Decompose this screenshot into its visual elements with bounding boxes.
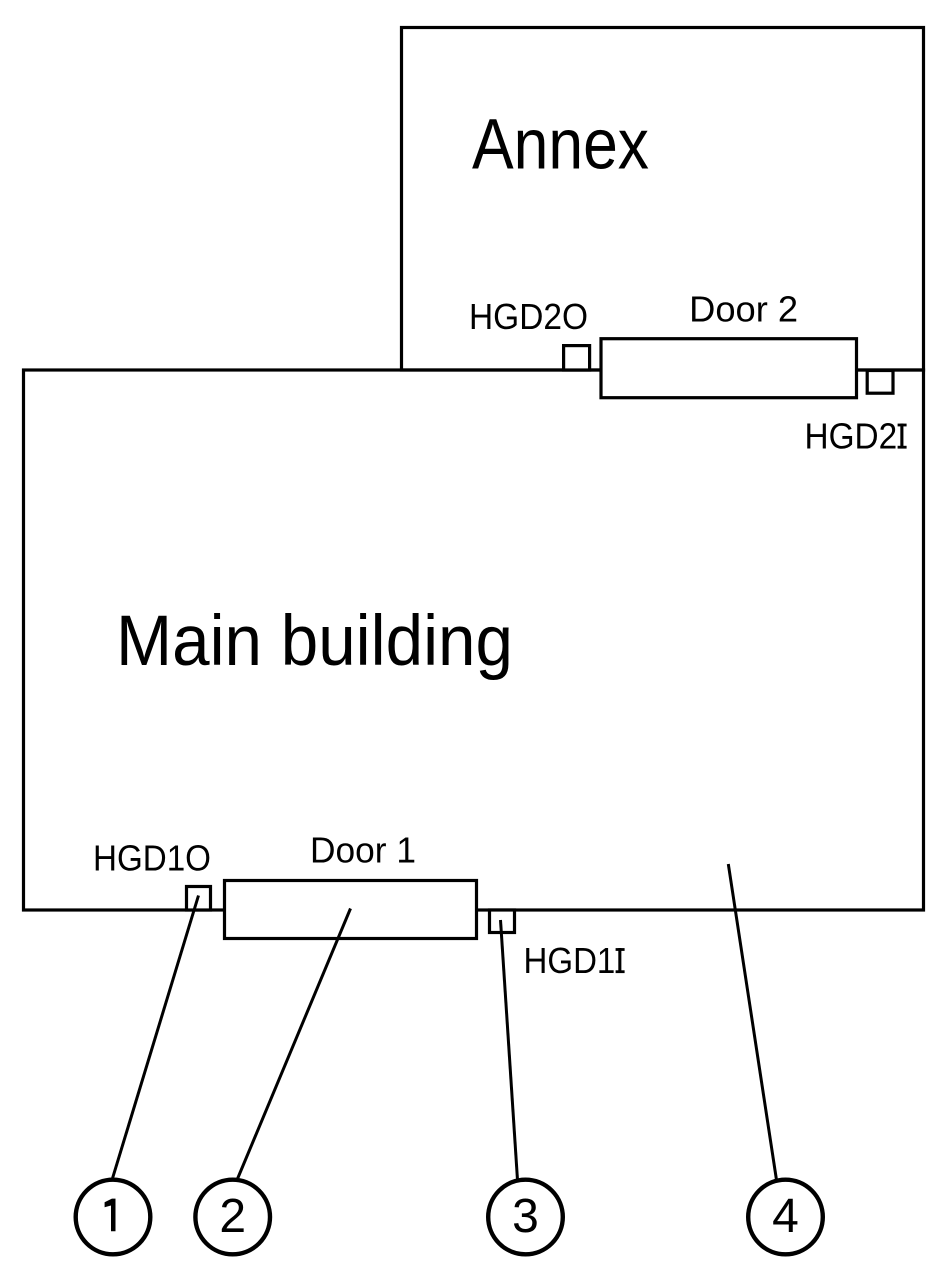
svg-text:Door 2: Door 2 [689,289,798,330]
svg-text:HGD1O: HGD1O [93,838,211,879]
svg-text:HGD1I: HGD1I [524,940,625,981]
svg-text:HGD2O: HGD2O [469,296,588,337]
svg-text:HGD2I: HGD2I [805,416,907,457]
svg-text:2: 2 [219,1190,246,1243]
svg-text:3: 3 [512,1190,539,1243]
svg-text:Annex: Annex [472,106,649,185]
svg-text:4: 4 [772,1190,799,1243]
svg-text:Main building: Main building [116,602,513,681]
svg-text:Door 1: Door 1 [310,830,416,871]
